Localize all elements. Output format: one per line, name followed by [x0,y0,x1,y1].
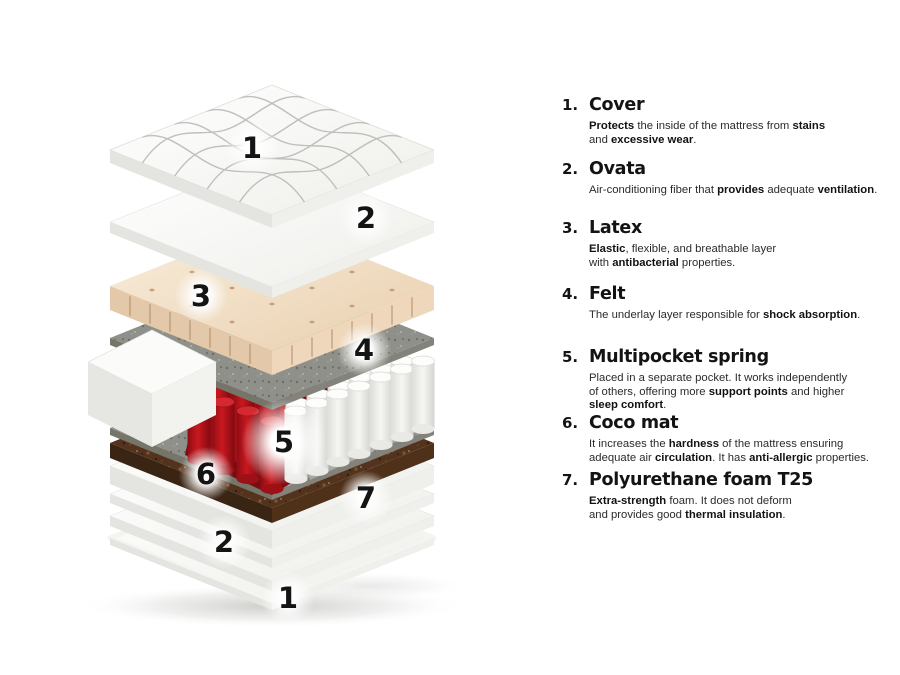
legend: 1. Cover Protects the inside of the matt… [562,0,894,675]
legend-item: 5. Multipocket spring Placed in a separa… [562,348,894,413]
legend-item-head: 4. Felt [562,285,894,304]
legend-item-description: The underlay layer responsible for shock… [589,309,894,323]
legend-item-description: It increases the hardness of the mattres… [589,438,894,465]
legend-item-title: Latex [589,219,642,238]
legend-item-number: 6. [562,414,589,432]
legend-item-head: 6. Coco mat [562,414,894,433]
legend-item: 2. Ovata Air-conditioning fiber that pro… [562,160,894,198]
legend-item-description: Air-conditioning fiber that provides ade… [589,184,894,198]
legend-item: 7. Polyurethane foam T25 Extra-strength … [562,471,894,522]
legend-item-number: 7. [562,471,589,489]
legend-item: 6. Coco mat It increases the hardness of… [562,414,894,465]
legend-item-number: 2. [562,160,589,178]
legend-item-number: 5. [562,348,589,366]
legend-item-title: Coco mat [589,414,678,433]
legend-item-title: Multipocket spring [589,348,769,367]
legend-item-title: Cover [589,96,644,115]
legend-item-title: Polyurethane foam T25 [589,471,813,490]
legend-item-description: Elastic, flexible, and breathable layer … [589,243,894,270]
legend-item-head: 7. Polyurethane foam T25 [562,471,894,490]
legend-item-number: 1. [562,96,589,114]
legend-item-title: Ovata [589,160,646,179]
legend-item-number: 3. [562,219,589,237]
mattress-diagram-svg [0,0,560,675]
legend-item-description: Placed in a separate pocket. It works in… [589,372,894,413]
mattress-diagram: 123456721 [0,0,560,675]
legend-item-description: Protects the inside of the mattress from… [589,120,894,147]
legend-item-head: 2. Ovata [562,160,894,179]
legend-item: 3. Latex Elastic, flexible, and breathab… [562,219,894,270]
legend-item-title: Felt [589,285,625,304]
mattress-layers-infographic: 123456721 1. Cover Protects the inside o… [0,0,900,675]
legend-item: 1. Cover Protects the inside of the matt… [562,96,894,147]
legend-item-description: Extra-strength foam. It does not deform … [589,495,894,522]
legend-item: 4. Felt The underlay layer responsible f… [562,285,894,323]
legend-item-head: 1. Cover [562,96,894,115]
legend-item-number: 4. [562,285,589,303]
legend-item-head: 3. Latex [562,219,894,238]
legend-item-head: 5. Multipocket spring [562,348,894,367]
